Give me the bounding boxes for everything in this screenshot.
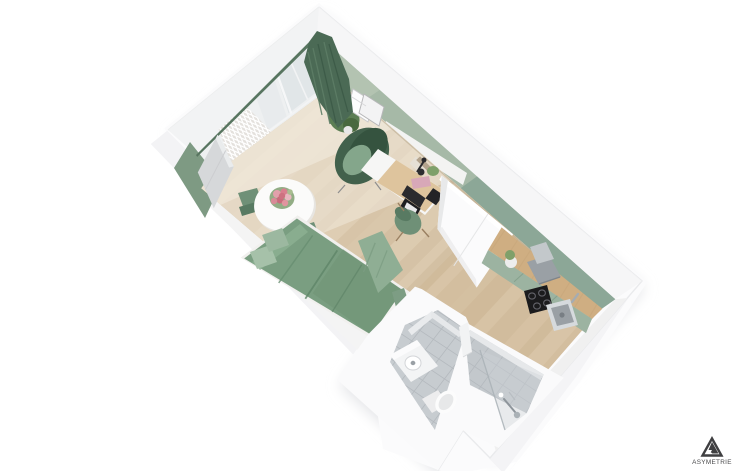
svg-text:ASYMETRIE: ASYMETRIE bbox=[692, 459, 732, 466]
